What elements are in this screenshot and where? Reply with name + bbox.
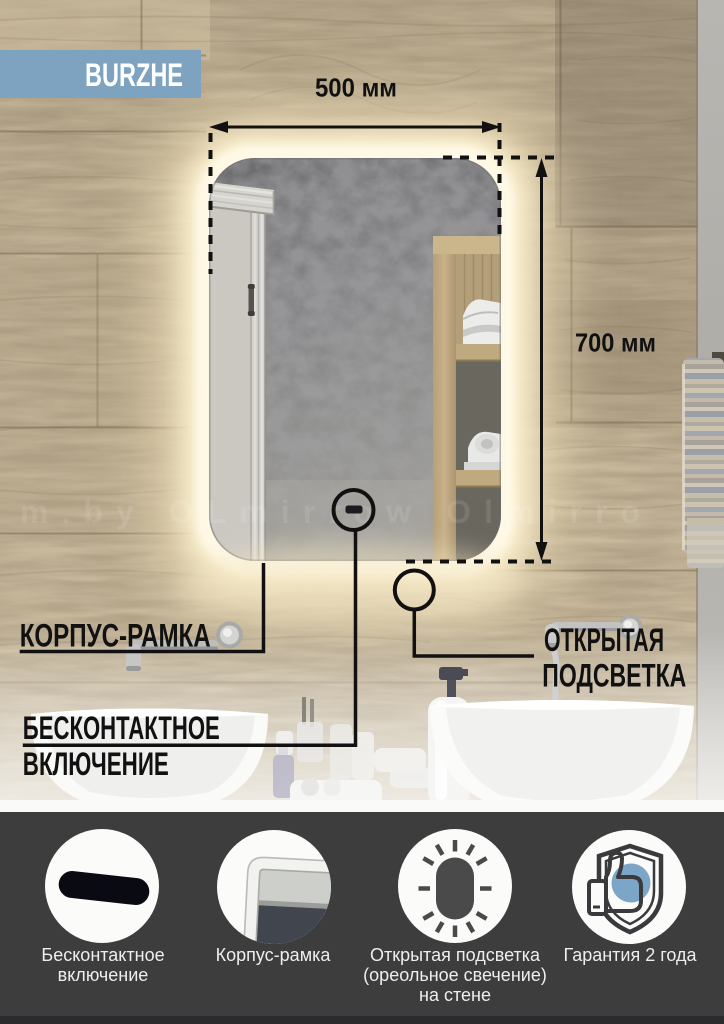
svg-text:500 мм: 500 мм: [315, 73, 397, 103]
svg-text:ПОДСВЕТКА: ПОДСВЕТКА: [542, 658, 686, 694]
svg-text:Корпус-рамка: Корпус-рамка: [216, 945, 332, 965]
svg-text:на стене: на стене: [419, 985, 491, 1005]
svg-text:ВКЛЮЧЕНИЕ: ВКЛЮЧЕНИЕ: [23, 746, 169, 782]
svg-text:700 мм: 700 мм: [575, 328, 656, 358]
svg-text:ОТКРЫТАЯ: ОТКРЫТАЯ: [544, 622, 664, 658]
svg-text:БЕСКОНТАКТНОЕ: БЕСКОНТАКТНОЕ: [23, 710, 220, 746]
svg-text:(ореольное свечение): (ореольное свечение): [363, 965, 547, 985]
svg-text:Открытая подсветка: Открытая подсветка: [370, 945, 541, 965]
svg-text:Гарантия 2 года: Гарантия 2 года: [563, 945, 697, 965]
svg-text:Бесконтактное: Бесконтактное: [41, 945, 164, 965]
svg-text:BURZHE: BURZHE: [85, 57, 183, 93]
svg-text:включение: включение: [58, 965, 149, 985]
svg-text:КОРПУС-РАМКА: КОРПУС-РАМКА: [20, 618, 211, 654]
